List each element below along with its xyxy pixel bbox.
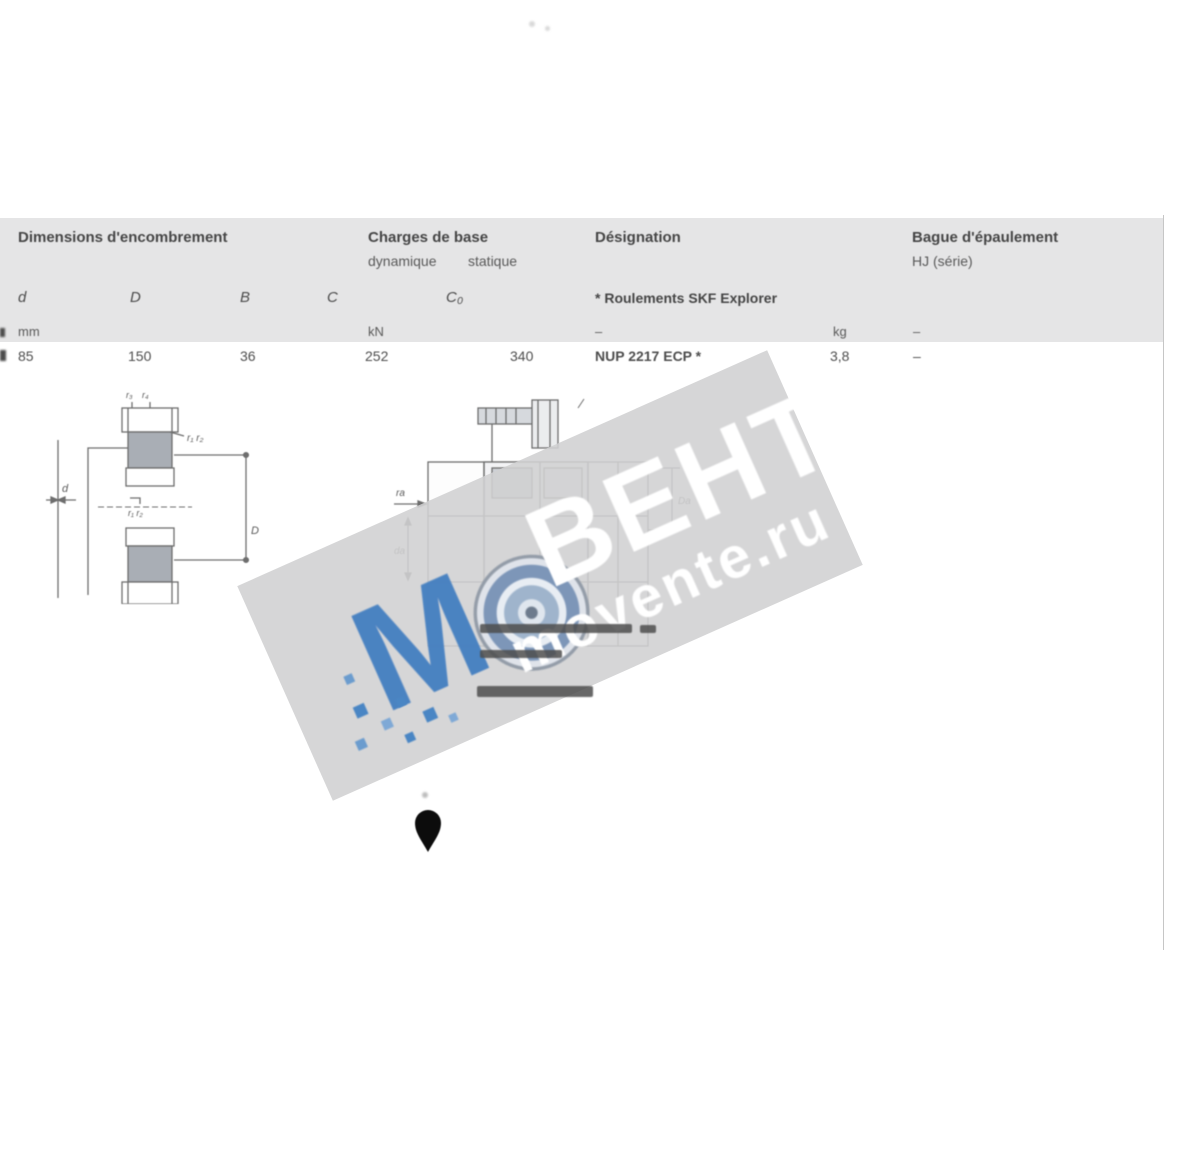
page-right-rule [1163,215,1164,950]
col-sub-static: statique [468,253,517,269]
drawing-caption-mark [480,650,562,658]
col-group-loads: Charges de base [368,229,488,246]
dim-label-r4: r₄ [142,390,149,400]
scan-artifact [422,792,428,798]
dim-label-outer: D [251,525,259,537]
dim-label-bore: d [62,483,69,495]
col-sub-ring: HJ (série) [912,253,973,269]
drawing-caption-mark [477,686,593,697]
logo-mosaic-tile [353,703,369,719]
dim-label-r1r2-inner: r₁ r₂ [128,508,143,518]
symbol-C: C [327,289,338,306]
unit-kg: kg [833,324,847,339]
dim-label-r3: r₃ [126,390,133,400]
cell-C0: 340 [510,348,533,364]
symbol-C0: C₀ [446,289,463,306]
cell-d: 85 [18,348,34,364]
cell-B: 36 [240,348,256,364]
explorer-note: * Roulements SKF Explorer [595,290,777,306]
symbol-B: B [240,289,250,306]
drawing-caption-mark [640,625,656,633]
unit-designation: – [595,324,602,339]
dim-label-ra: ra [396,488,405,499]
col-group-designation: Désignation [595,229,681,246]
cell-ring: – [913,348,921,364]
unit-mm: mm [18,324,40,339]
cell-designation: NUP 2217 ECP * [595,348,701,364]
cell-mass: 3,8 [830,348,849,364]
catalog-page: Dimensions d'encombrement Charges de bas… [0,0,1200,1165]
dim-label-r1r2-side: r₁ r₂ [187,433,204,444]
left-bearing-drawing: r₃ r₄ r₁ r₂ r₁ r₂ d D [42,386,272,604]
cell-D: 150 [128,348,151,364]
scan-smudge [0,328,5,337]
symbol-d: d [18,289,26,306]
scan-artifact [545,26,550,31]
symbol-D: D [130,289,141,306]
col-group-dimensions: Dimensions d'encombrement [18,229,227,246]
unit-kN: kN [368,324,384,339]
scan-smudge [0,350,6,361]
col-sub-dynamic: dynamique [368,253,437,269]
scan-artifact [529,21,535,27]
col-group-ring: Bague d'épaulement [912,229,1058,246]
logo-mosaic-tile [343,673,355,685]
drawing-caption-mark [480,624,632,633]
unit-ring: – [913,324,920,339]
cell-C: 252 [365,348,388,364]
drop-marker-icon [410,806,446,854]
logo-mosaic-tile [355,738,368,751]
